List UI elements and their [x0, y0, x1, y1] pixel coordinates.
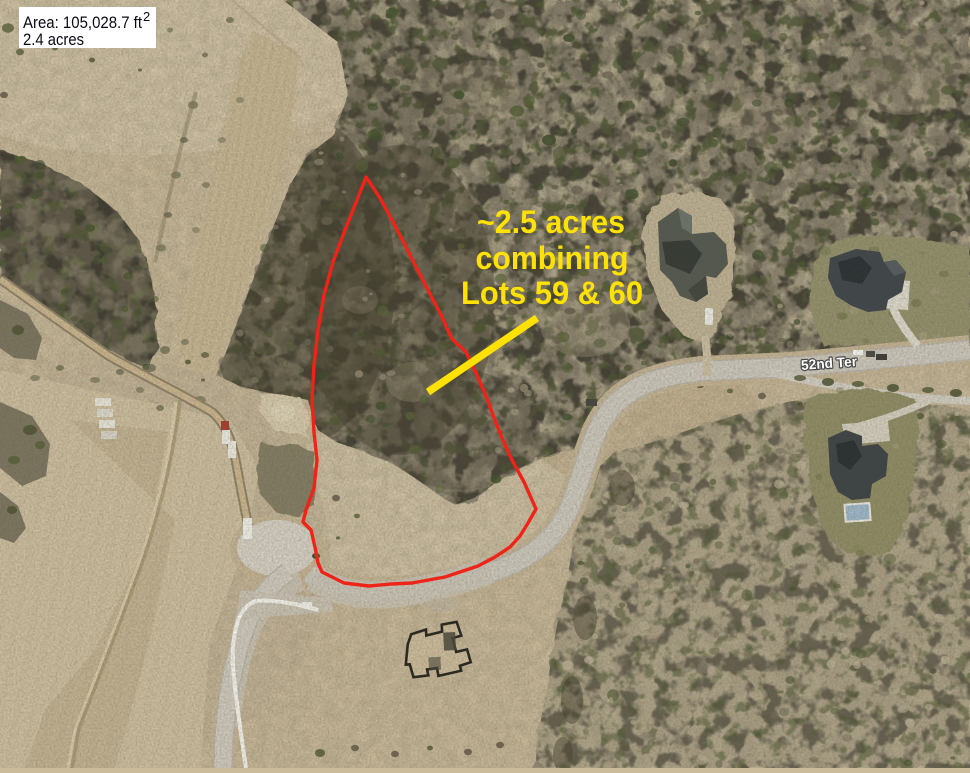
- svg-text:combining: combining: [476, 240, 629, 276]
- svg-text:Lots 59 & 60: Lots 59 & 60: [461, 275, 643, 311]
- svg-text:~2.5 acres: ~2.5 acres: [477, 204, 625, 240]
- svg-text:2: 2: [143, 9, 150, 24]
- svg-text:2.4 acres: 2.4 acres: [23, 30, 84, 49]
